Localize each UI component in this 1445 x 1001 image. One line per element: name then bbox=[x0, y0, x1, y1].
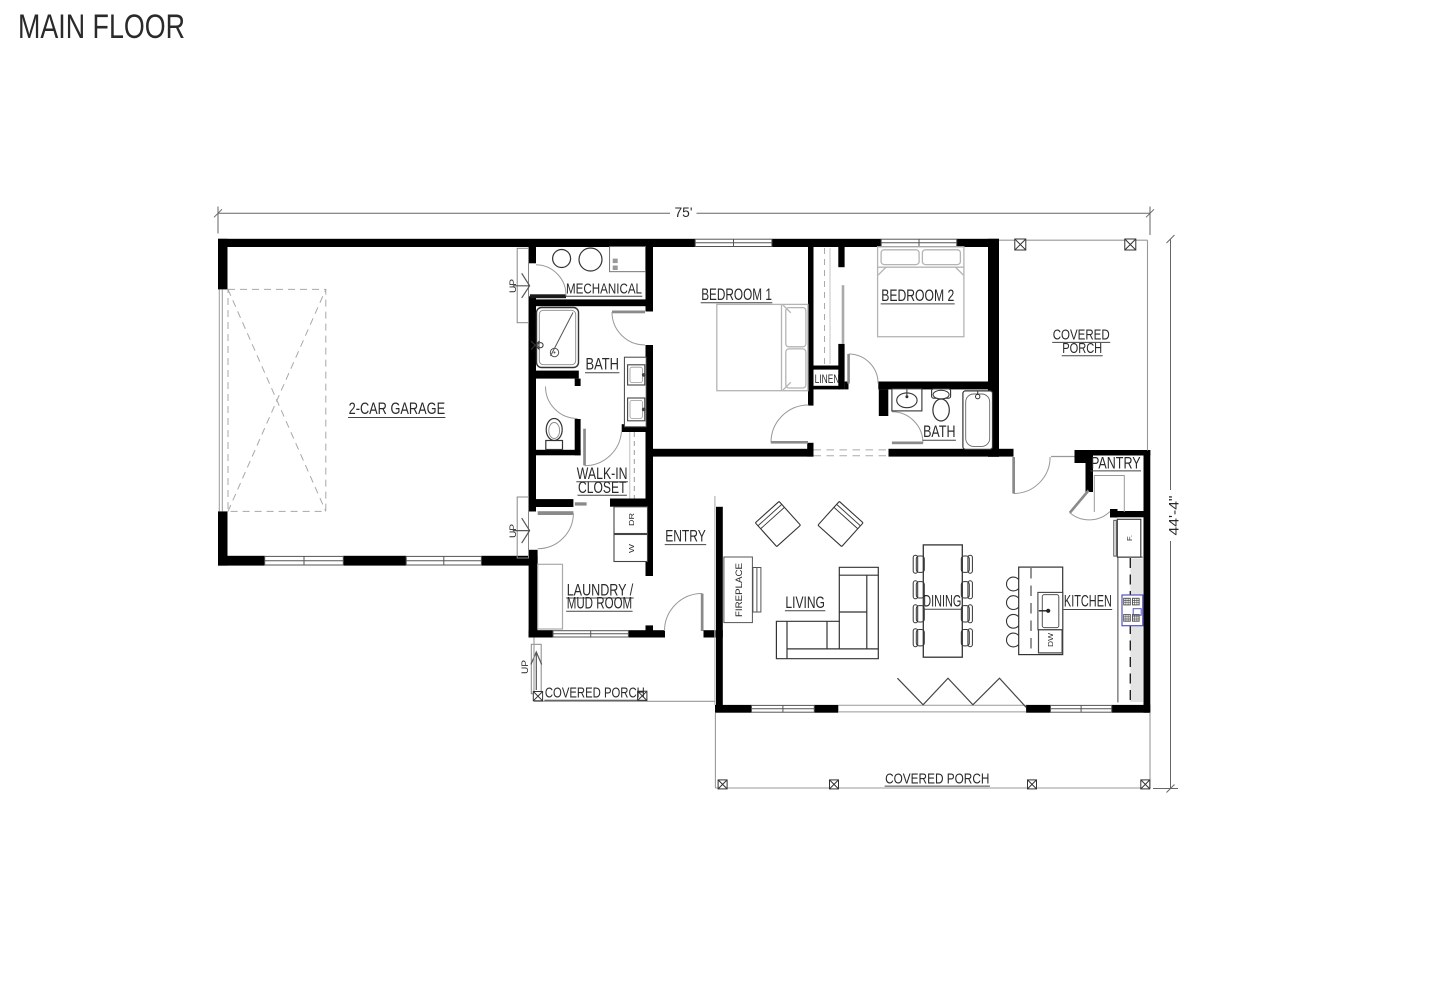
svg-text:UP: UP bbox=[520, 660, 531, 674]
svg-text:44'-4": 44'-4" bbox=[1167, 495, 1182, 535]
svg-text:LIVING: LIVING bbox=[785, 594, 825, 612]
svg-text:DR: DR bbox=[627, 512, 636, 526]
svg-text:75': 75' bbox=[675, 205, 693, 220]
svg-text:2-CAR GARAGE: 2-CAR GARAGE bbox=[349, 399, 446, 418]
svg-text:F.: F. bbox=[1127, 535, 1134, 541]
svg-text:DW: DW bbox=[1048, 633, 1055, 647]
svg-text:CLOSET: CLOSET bbox=[578, 479, 627, 497]
svg-text:FIREPLACE: FIREPLACE bbox=[734, 563, 745, 617]
svg-text:KITCHEN: KITCHEN bbox=[1064, 593, 1112, 611]
svg-text:PANTRY: PANTRY bbox=[1091, 454, 1141, 472]
svg-text:COVERED PORCH: COVERED PORCH bbox=[545, 686, 645, 702]
svg-text:BEDROOM 2: BEDROOM 2 bbox=[881, 287, 954, 305]
svg-text:MECHANICAL: MECHANICAL bbox=[566, 281, 642, 298]
svg-text:DINING: DINING bbox=[923, 592, 961, 610]
svg-text:COVERED PORCH: COVERED PORCH bbox=[885, 771, 989, 787]
svg-text:ENTRY: ENTRY bbox=[665, 527, 706, 546]
svg-text:MUD ROOM: MUD ROOM bbox=[567, 594, 633, 613]
svg-text:LINEN: LINEN bbox=[815, 372, 840, 386]
svg-text:BATH: BATH bbox=[586, 356, 620, 374]
svg-text:BATH: BATH bbox=[923, 423, 955, 441]
svg-text:W: W bbox=[627, 543, 636, 553]
svg-text:MAIN FLOOR: MAIN FLOOR bbox=[18, 8, 185, 46]
svg-text:PORCH: PORCH bbox=[1062, 341, 1102, 357]
svg-text:BEDROOM 1: BEDROOM 1 bbox=[701, 286, 772, 304]
